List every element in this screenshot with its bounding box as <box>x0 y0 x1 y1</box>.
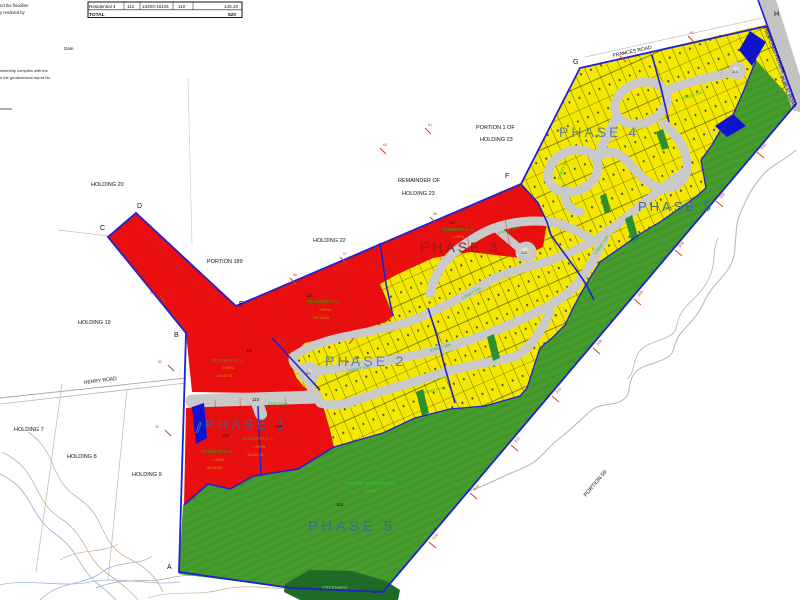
svg-text:H: H <box>774 11 779 18</box>
svg-text:STREET 9th: STREET 9th <box>268 402 288 406</box>
svg-text:HOLDING 20: HOLDING 20 <box>91 182 124 188</box>
svg-text:147 ALFA: 147 ALFA <box>313 316 330 320</box>
svg-text:110: 110 <box>178 4 186 9</box>
svg-text:110: 110 <box>732 70 738 74</box>
svg-text:1.09Ha: 1.09Ha <box>212 458 225 462</box>
svg-text:Residential 4: Residential 4 <box>89 4 116 9</box>
svg-text:53: 53 <box>155 425 159 429</box>
svg-text:4.35Ha: 4.35Ha <box>363 488 377 493</box>
svg-text:52: 52 <box>158 360 162 364</box>
svg-text:145.20: 145.20 <box>224 4 238 9</box>
svg-text:51: 51 <box>150 291 154 295</box>
svg-text:HOLDING 23: HOLDING 23 <box>402 191 435 197</box>
svg-text:G: G <box>573 59 578 66</box>
svg-text:HOLDING 19: HOLDING 19 <box>78 320 111 326</box>
svg-text:TOTAL: TOTAL <box>89 12 105 18</box>
svg-text:C: C <box>100 225 105 232</box>
svg-text:110 ALFA: 110 ALFA <box>247 453 264 457</box>
svg-text:1.09Ha: 1.09Ha <box>222 366 235 370</box>
svg-text:E: E <box>239 301 244 308</box>
svg-text:B: B <box>174 332 179 339</box>
svg-text:116: 116 <box>306 293 313 298</box>
svg-text:115: 115 <box>336 502 344 507</box>
svg-text:nd the floodline: nd the floodline <box>0 3 29 8</box>
svg-text:58: 58 <box>433 212 437 216</box>
svg-text:PRIVATE OPEN SPACE: PRIVATE OPEN SPACE <box>345 481 394 486</box>
svg-text:HOLDING 8: HOLDING 8 <box>67 454 97 460</box>
svg-text:1.09Ha: 1.09Ha <box>452 235 465 239</box>
svg-text:112: 112 <box>127 4 135 9</box>
svg-text:PHASE 5: PHASE 5 <box>638 199 714 214</box>
svg-text:HOLDING 22: HOLDING 22 <box>313 238 346 244</box>
svg-text:y resolved by: y resolved by <box>0 10 26 15</box>
svg-text:110: 110 <box>521 250 528 255</box>
svg-text:HOLDING 9: HOLDING 9 <box>132 472 162 478</box>
svg-text:110: 110 <box>305 372 311 376</box>
svg-text:61: 61 <box>428 123 432 127</box>
svg-text:RESIDENTIAL 4: RESIDENTIAL 4 <box>212 358 243 363</box>
svg-text:60: 60 <box>383 143 387 147</box>
svg-text:HOLDING 23: HOLDING 23 <box>480 137 513 143</box>
svg-text:1.09Ha: 1.09Ha <box>319 308 332 312</box>
svg-text:Date: Date <box>64 46 74 51</box>
svg-text:110 ALFA: 110 ALFA <box>206 466 223 470</box>
svg-text:117: 117 <box>449 220 456 225</box>
svg-text:56: 56 <box>293 273 297 277</box>
svg-text:110 ALFA: 110 ALFA <box>216 374 233 378</box>
svg-text:106: 106 <box>275 424 283 429</box>
svg-text:A: A <box>167 564 172 571</box>
svg-text:PHASE 3: PHASE 3 <box>420 239 500 255</box>
svg-text:HOLDING 7: HOLDING 7 <box>14 427 44 433</box>
svg-text:PORTION 1 OF: PORTION 1 OF <box>476 125 515 131</box>
svg-text:REMAINDER OF: REMAINDER OF <box>398 178 441 184</box>
svg-text:102: 102 <box>222 433 230 438</box>
svg-text:520: 520 <box>228 12 236 18</box>
svg-text:1.09Ha: 1.09Ha <box>253 445 266 449</box>
svg-text:PHASE 5: PHASE 5 <box>308 518 396 535</box>
svg-text:57: 57 <box>343 252 347 256</box>
svg-text:n the geotechnical report No.: n the geotechnical report No. <box>0 75 51 80</box>
svg-text:F: F <box>505 173 509 180</box>
svg-text:RESIDENTIAL 4: RESIDENTIAL 4 <box>442 227 473 232</box>
svg-text:110: 110 <box>252 397 260 402</box>
svg-text:RESIDENTIAL 4: RESIDENTIAL 4 <box>201 449 232 454</box>
svg-text:RESIDENTIAL 4: RESIDENTIAL 4 <box>242 436 273 441</box>
svg-text:111: 111 <box>246 348 253 353</box>
svg-text:wnership complies with the: wnership complies with the <box>0 68 49 73</box>
svg-text:PHASE 4: PHASE 4 <box>559 124 639 140</box>
svg-text:RESIDENTIAL 4: RESIDENTIAL 4 <box>308 299 339 304</box>
svg-text:13200-16191: 13200-16191 <box>142 4 170 9</box>
svg-text:PORTION 189: PORTION 189 <box>207 259 243 265</box>
svg-text:63: 63 <box>690 31 694 35</box>
svg-text:D: D <box>137 203 142 210</box>
